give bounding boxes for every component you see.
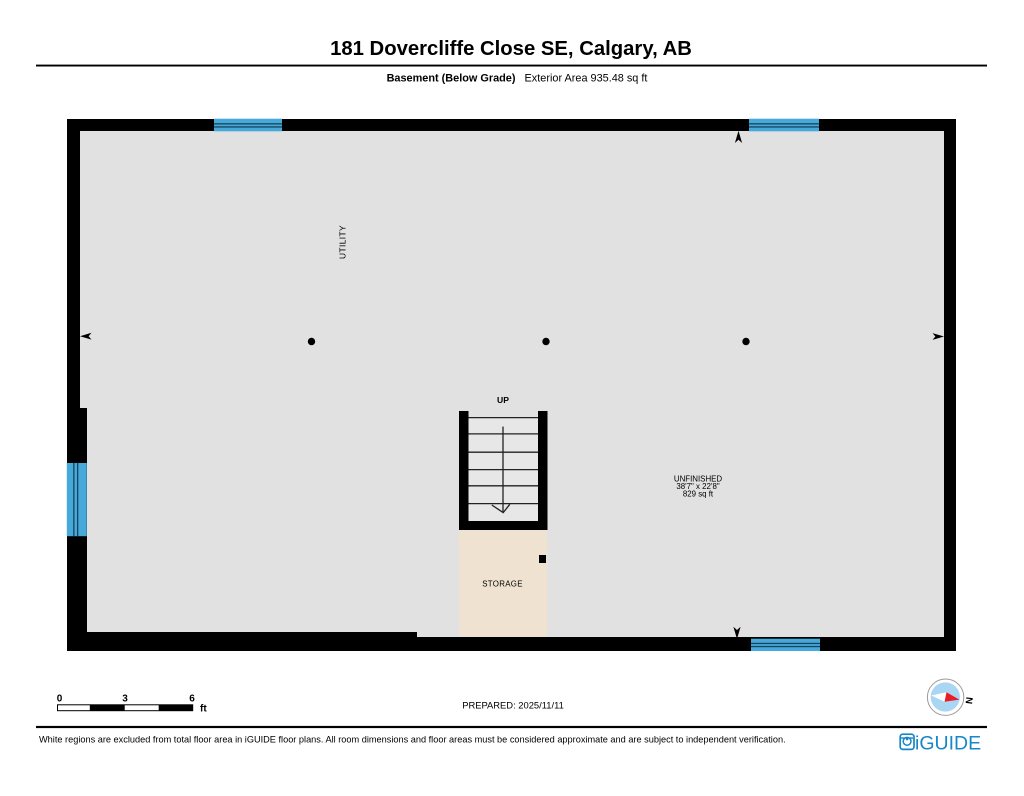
- svg-text:UTILITY: UTILITY: [338, 225, 348, 259]
- svg-text:STORAGE: STORAGE: [482, 580, 523, 589]
- svg-text:6: 6: [189, 694, 195, 705]
- svg-text:3: 3: [122, 694, 128, 705]
- svg-text:Basement (Below Grade) Exter: Basement (Below Grade) Exterior Area 935…: [387, 73, 648, 85]
- svg-text:White regions are excluded fro: White regions are excluded from total fl…: [39, 734, 786, 744]
- svg-text:ft: ft: [200, 704, 207, 715]
- svg-text:181 Dovercliffe Close SE, Calg: 181 Dovercliffe Close SE, Calgary, AB: [330, 38, 692, 60]
- svg-text:UP: UP: [497, 395, 509, 405]
- svg-text:iGUIDE: iGUIDE: [915, 732, 981, 754]
- svg-text:829 sq ft: 829 sq ft: [683, 490, 714, 499]
- svg-text:PREPARED: 2025/11/11: PREPARED: 2025/11/11: [462, 700, 564, 711]
- svg-text:0: 0: [57, 694, 63, 705]
